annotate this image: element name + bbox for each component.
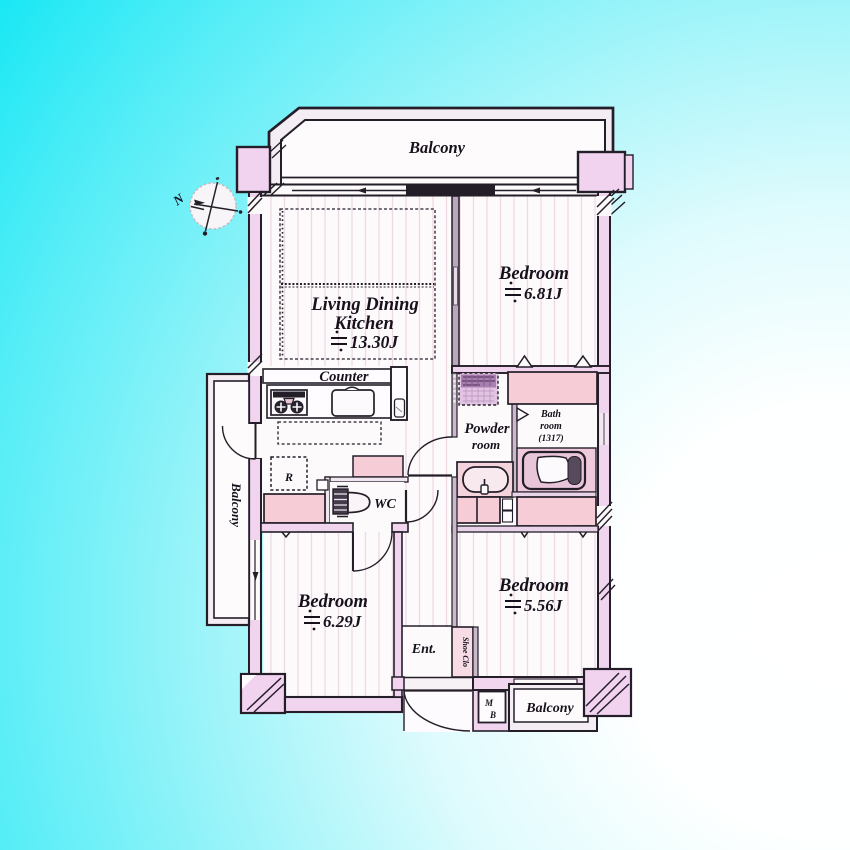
svg-text:6.81J: 6.81J bbox=[524, 284, 563, 303]
svg-text:6.29J: 6.29J bbox=[323, 612, 362, 631]
svg-text:13.30J: 13.30J bbox=[350, 332, 399, 352]
svg-text:WC: WC bbox=[374, 497, 396, 512]
svg-text:Bath: Bath bbox=[540, 409, 561, 420]
svg-text:Balcony: Balcony bbox=[229, 482, 244, 527]
svg-text:Bedroom: Bedroom bbox=[498, 576, 569, 596]
svg-text:Living Dining: Living Dining bbox=[310, 295, 418, 315]
svg-text:Balcony: Balcony bbox=[525, 701, 574, 716]
svg-text:Counter: Counter bbox=[319, 369, 369, 385]
svg-text:R: R bbox=[284, 470, 293, 484]
svg-text:room: room bbox=[472, 437, 500, 452]
svg-text:Ent.: Ent. bbox=[411, 642, 437, 657]
svg-text:Balcony: Balcony bbox=[408, 138, 466, 157]
svg-text:M: M bbox=[484, 698, 494, 708]
svg-text:room: room bbox=[540, 421, 562, 432]
svg-text:(1317): (1317) bbox=[538, 433, 563, 444]
svg-text:Kitchen: Kitchen bbox=[333, 314, 394, 334]
svg-text:B: B bbox=[489, 710, 496, 720]
svg-text:Bedroom: Bedroom bbox=[297, 592, 368, 612]
svg-text:Shoe Clo: Shoe Clo bbox=[461, 637, 470, 667]
svg-text:Powder: Powder bbox=[464, 421, 509, 437]
svg-text:Bedroom: Bedroom bbox=[498, 264, 569, 284]
svg-text:5.56J: 5.56J bbox=[524, 596, 563, 615]
